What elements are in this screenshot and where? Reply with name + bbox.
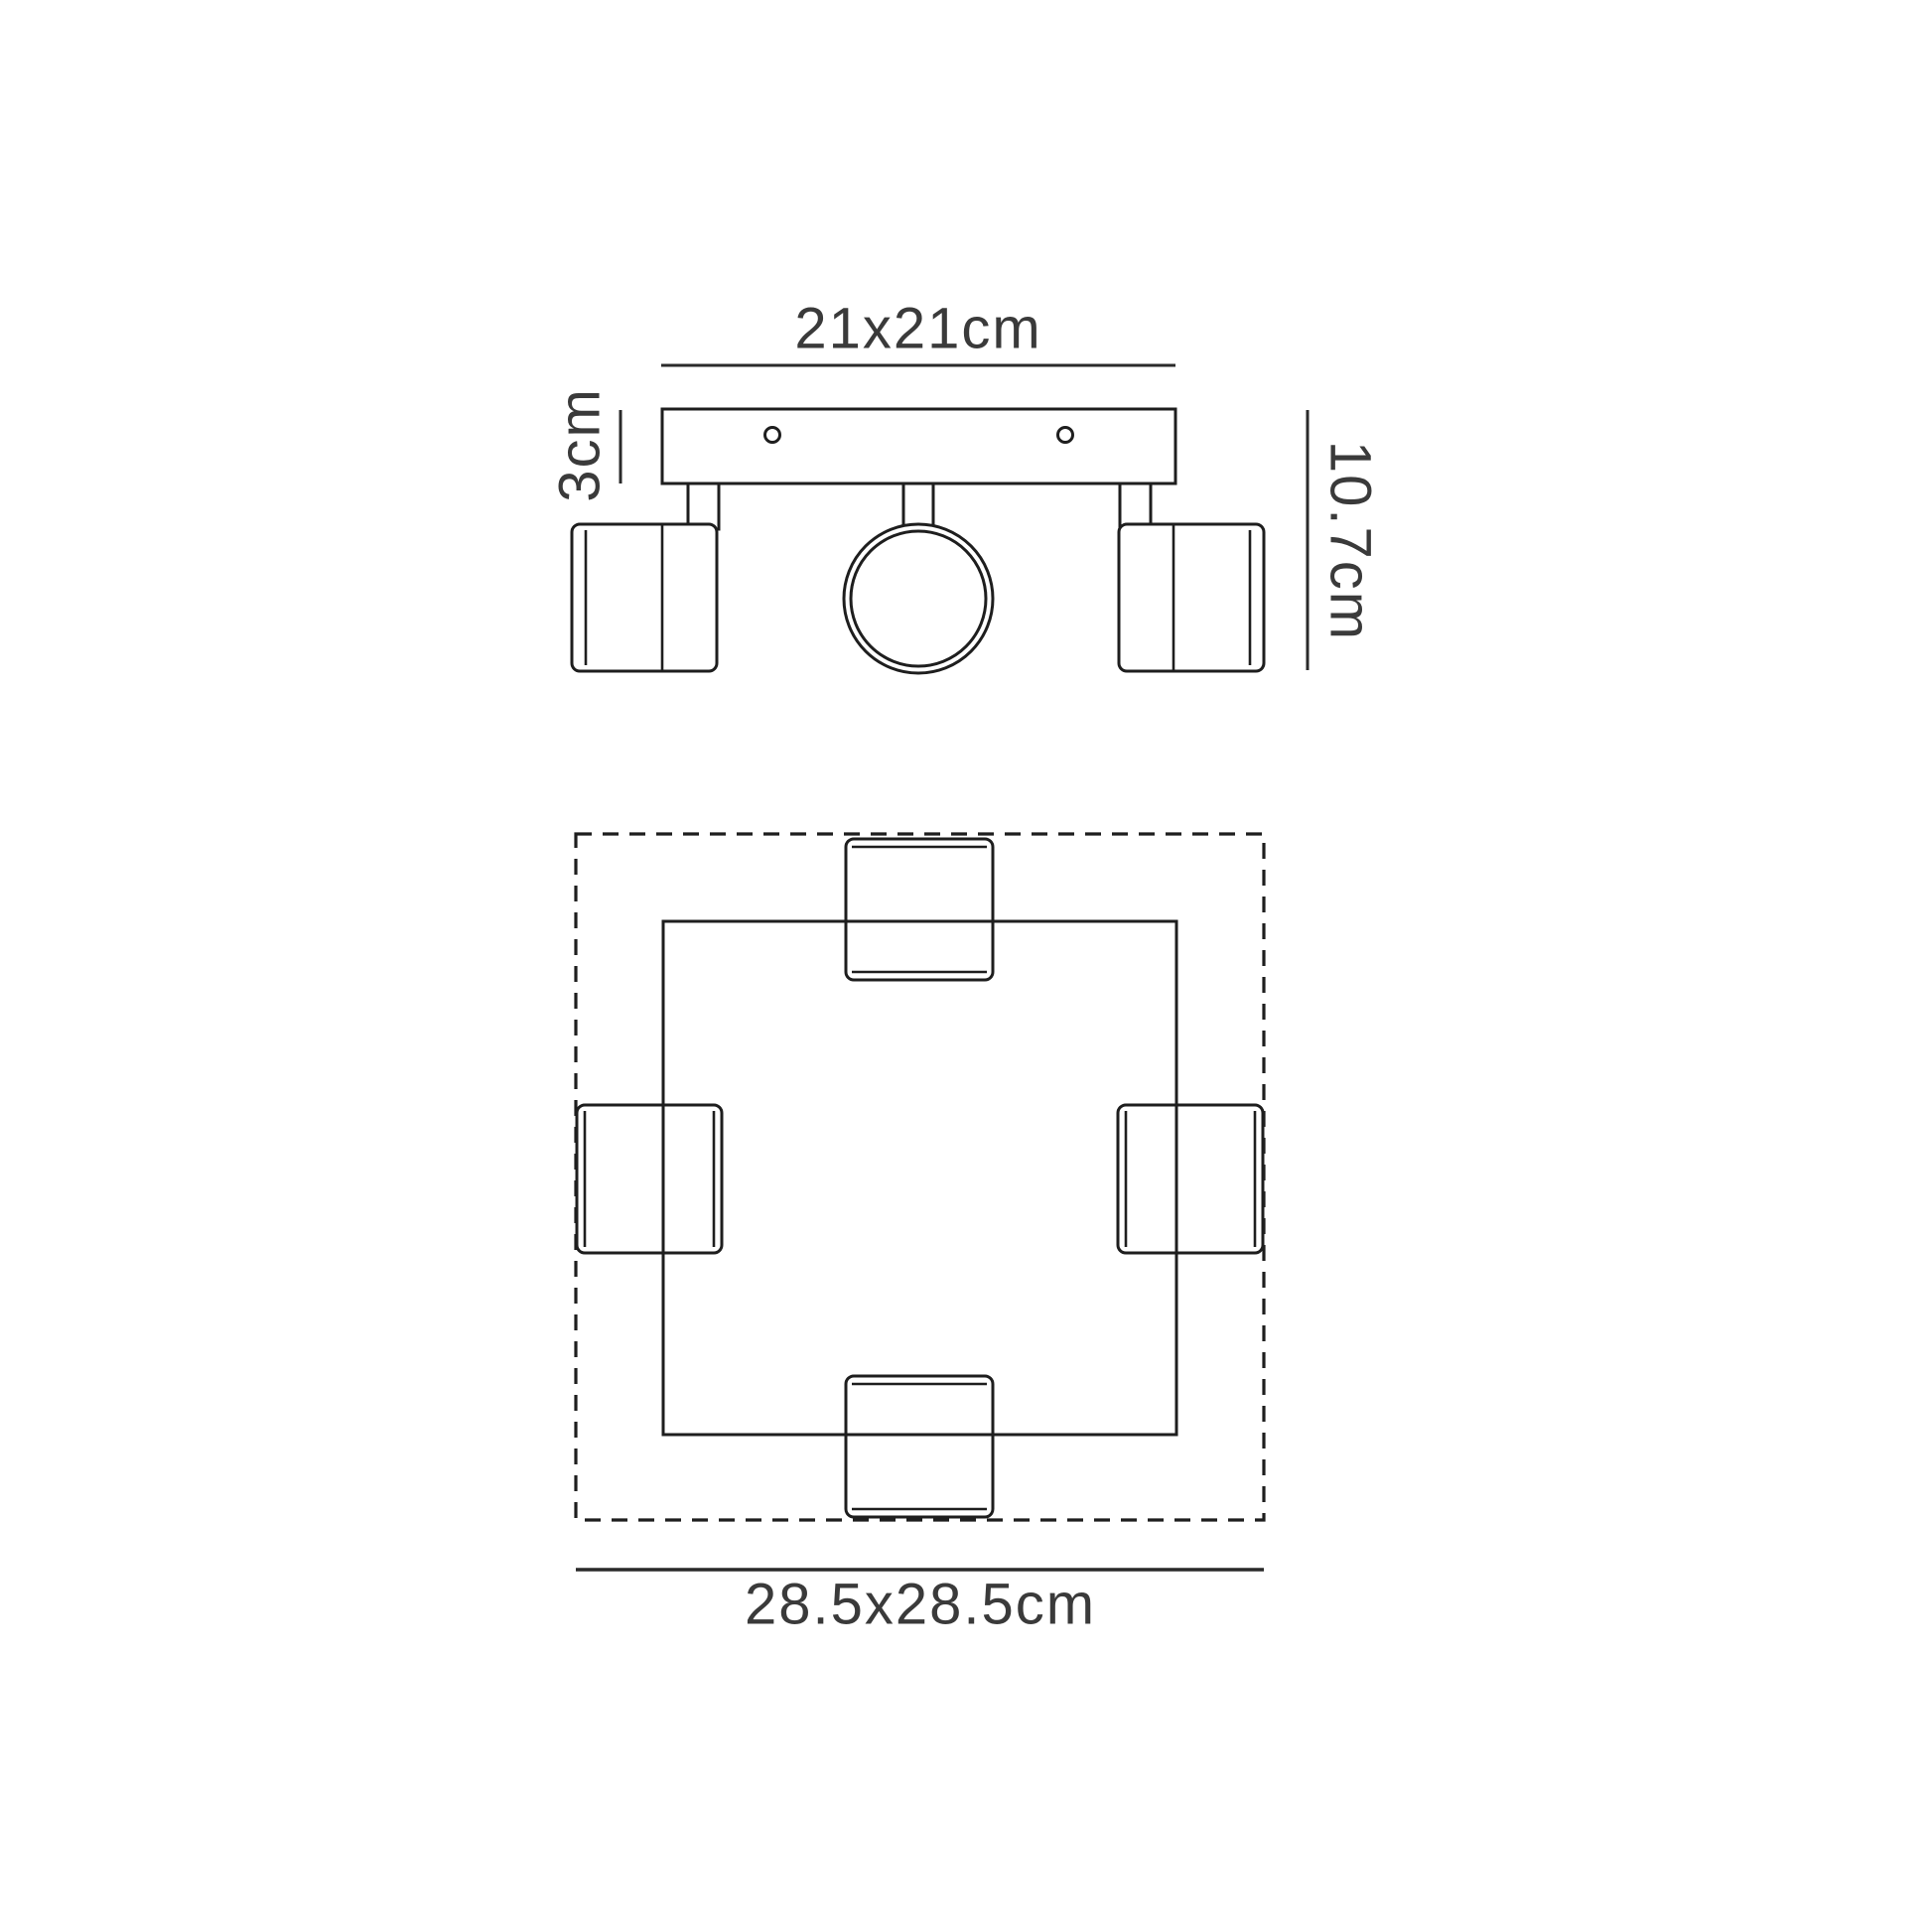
spot-head-left-body	[572, 524, 717, 671]
stem-right	[1120, 483, 1151, 529]
plate-plan-outline	[663, 921, 1176, 1435]
plan-spot-head-bottom-body	[846, 1376, 993, 1517]
fixture-height-dimension-label: 10.7cm	[1318, 441, 1383, 641]
spot-head-right-body	[1119, 524, 1264, 671]
plan-spot-head-right	[1118, 1105, 1263, 1253]
footprint-dimension-label: 28.5x28.5cm	[745, 1573, 1096, 1637]
plate-thickness-dimension-label: 3cm	[548, 387, 613, 502]
spot-head-center-outer-ring	[844, 524, 993, 673]
spot-head-right	[1119, 524, 1264, 671]
spotlight-dimension-diagram: 21x21cm 3cm 10.7cm	[0, 0, 1932, 1932]
spot-head-center	[844, 524, 993, 673]
side-view: 21x21cm 3cm 10.7cm	[548, 297, 1383, 674]
plan-spot-head-top-body	[846, 839, 993, 980]
plan-spot-head-left-body	[577, 1105, 722, 1253]
plate-width-dimension-label: 21x21cm	[794, 297, 1041, 361]
plan-spot-head-left	[577, 1105, 722, 1253]
plan-spot-head-top	[846, 839, 993, 980]
stem-left	[688, 483, 719, 529]
plan-spot-head-bottom	[846, 1376, 993, 1517]
mounting-plate	[662, 409, 1175, 483]
plan-view: 28.5x28.5cm	[576, 834, 1264, 1637]
spot-head-left	[572, 524, 717, 671]
plan-spot-head-right-body	[1118, 1105, 1263, 1253]
